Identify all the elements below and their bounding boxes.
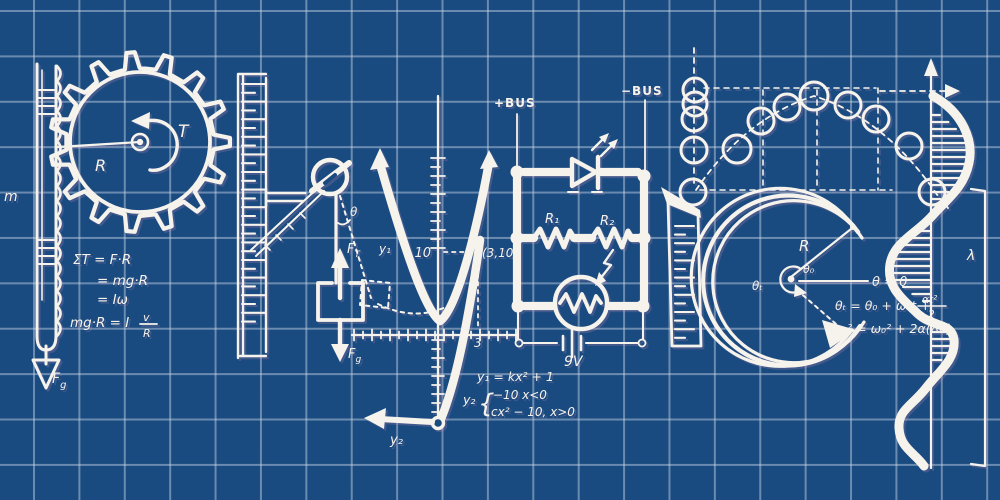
x-axis-value-label: 3 xyxy=(474,336,482,350)
battery-terminal-left xyxy=(516,340,523,347)
parabola-left-arrow-head xyxy=(370,148,389,170)
ball xyxy=(680,179,706,205)
resistor-r2-label: R₂ xyxy=(600,214,614,229)
y-axis-value-label: 10 xyxy=(414,246,431,261)
piecewise-case-1: −10 x<0 xyxy=(493,388,547,402)
circuit-node xyxy=(638,232,651,245)
gear-mass-label: m xyxy=(4,189,18,205)
wave-axis-arrow-head xyxy=(924,58,938,76)
resistor-r2-zigzag xyxy=(592,229,632,247)
gear-radius-label: R xyxy=(95,156,106,175)
letter-h-pulley-diagram: θ y₁ FT Fg xyxy=(238,74,452,365)
circuit-node xyxy=(511,232,524,245)
circuit-node xyxy=(638,170,651,183)
light-bolt-arrow xyxy=(600,250,613,279)
mass-gravity-label: Fg xyxy=(348,347,361,365)
letter-s-wave-diagram: λ xyxy=(880,58,985,468)
battery-cells xyxy=(563,329,581,357)
mass-gravity-arrow-head xyxy=(331,344,349,362)
photoresistor-zigzag xyxy=(560,294,601,312)
letter-c-rotation-diagram: R θₜ θ₀ θ = 0 θₜ = θ₀ + ω₀t + αt² 2 ωₜ² … xyxy=(691,188,951,366)
gear-torque-label: T xyxy=(178,122,190,142)
rack-tick-group-mid xyxy=(37,240,54,264)
parabola-right-arrow-head xyxy=(480,150,498,169)
letter-y-parabola-plot: 10 (3,10) 3 y₂ y₁ = kx² + 1 y₂ { −10 x<0… xyxy=(352,96,575,448)
projectile-motion-diagram xyxy=(680,48,948,208)
ball xyxy=(683,78,707,102)
swing-arc-label: y₁ xyxy=(378,242,391,256)
torque-equation-4-denominator: R xyxy=(143,327,151,340)
torque-equation-2: = mg·R xyxy=(97,273,148,289)
pulley-strut xyxy=(251,186,324,256)
theta-0-label: θ₀ xyxy=(803,263,815,276)
pulley-arm xyxy=(266,189,305,206)
rack-tick-group-top xyxy=(37,90,54,114)
wavelength-bracket xyxy=(971,189,985,466)
physics-blueprint-canvas: m R T Fg ΣT = F·R = mg·R = Iω mg·R = I v… xyxy=(0,0,1000,500)
c-radius-label: R xyxy=(799,237,809,255)
circuit-node xyxy=(512,300,525,313)
angle-arc xyxy=(338,220,350,224)
torque-equation-4-numerator: v xyxy=(143,311,150,324)
battery-terminal-right xyxy=(639,340,646,347)
torque-equation-4: mg·R = I xyxy=(70,315,129,331)
torque-equation-1: ΣT = F·R xyxy=(73,252,131,268)
plus-bus-label: +BUS xyxy=(494,96,536,110)
theta-loop-arrow-head xyxy=(794,284,807,297)
ball xyxy=(896,133,922,159)
rack-gravity-label: Fg xyxy=(52,371,66,391)
letter-i-ruler xyxy=(661,187,701,346)
torque-equation-3: = Iω xyxy=(97,292,128,308)
wavelength-label: λ xyxy=(966,248,975,264)
piecewise-case-2: cx² − 10, x>0 xyxy=(491,405,575,419)
ball xyxy=(723,135,751,163)
ball xyxy=(748,108,774,134)
diode-triangle xyxy=(572,157,598,188)
point-coordinate-label: (3,10) xyxy=(482,246,518,260)
c-dashed-radius xyxy=(797,290,836,324)
tail-line xyxy=(380,419,432,422)
circuit-node xyxy=(637,300,650,313)
letter-s-circuit-diagram: +BUS −BUS R₁ R₂ 9V xyxy=(494,84,663,370)
letter-p-gear-diagram: m R T Fg ΣT = F·R = mg·R = Iω mg·R = I v… xyxy=(4,52,230,391)
resistor-r1-zigzag xyxy=(534,229,574,247)
i-ruler-outline xyxy=(668,202,701,346)
battery-voltage-label: 9V xyxy=(564,354,584,370)
theta-t-label: θₜ xyxy=(752,279,763,293)
trajectory-dashed xyxy=(696,96,948,208)
pulley-angle-label: θ xyxy=(350,205,358,219)
tail-arrow-head xyxy=(364,408,386,429)
rack-toothed-edge xyxy=(57,66,61,336)
parabola-equation-2-lhs: y₂ xyxy=(462,392,475,407)
resistor-r1-label: R₁ xyxy=(545,212,559,227)
wave-horizontal-arrow-head xyxy=(945,84,960,98)
circuit-node xyxy=(511,166,524,179)
tension-force-label: FT xyxy=(347,242,361,260)
parabola-equation-1: y₁ = kx² + 1 xyxy=(476,369,554,384)
torque-arc xyxy=(146,120,177,170)
tail-label: y₂ xyxy=(389,433,403,448)
minus-bus-label: −BUS xyxy=(621,84,663,98)
torque-arrow-head xyxy=(131,112,150,129)
c-radius-end-dot xyxy=(850,224,856,230)
c-center-dot xyxy=(788,276,795,283)
h-ruler-tick-group xyxy=(242,84,265,322)
